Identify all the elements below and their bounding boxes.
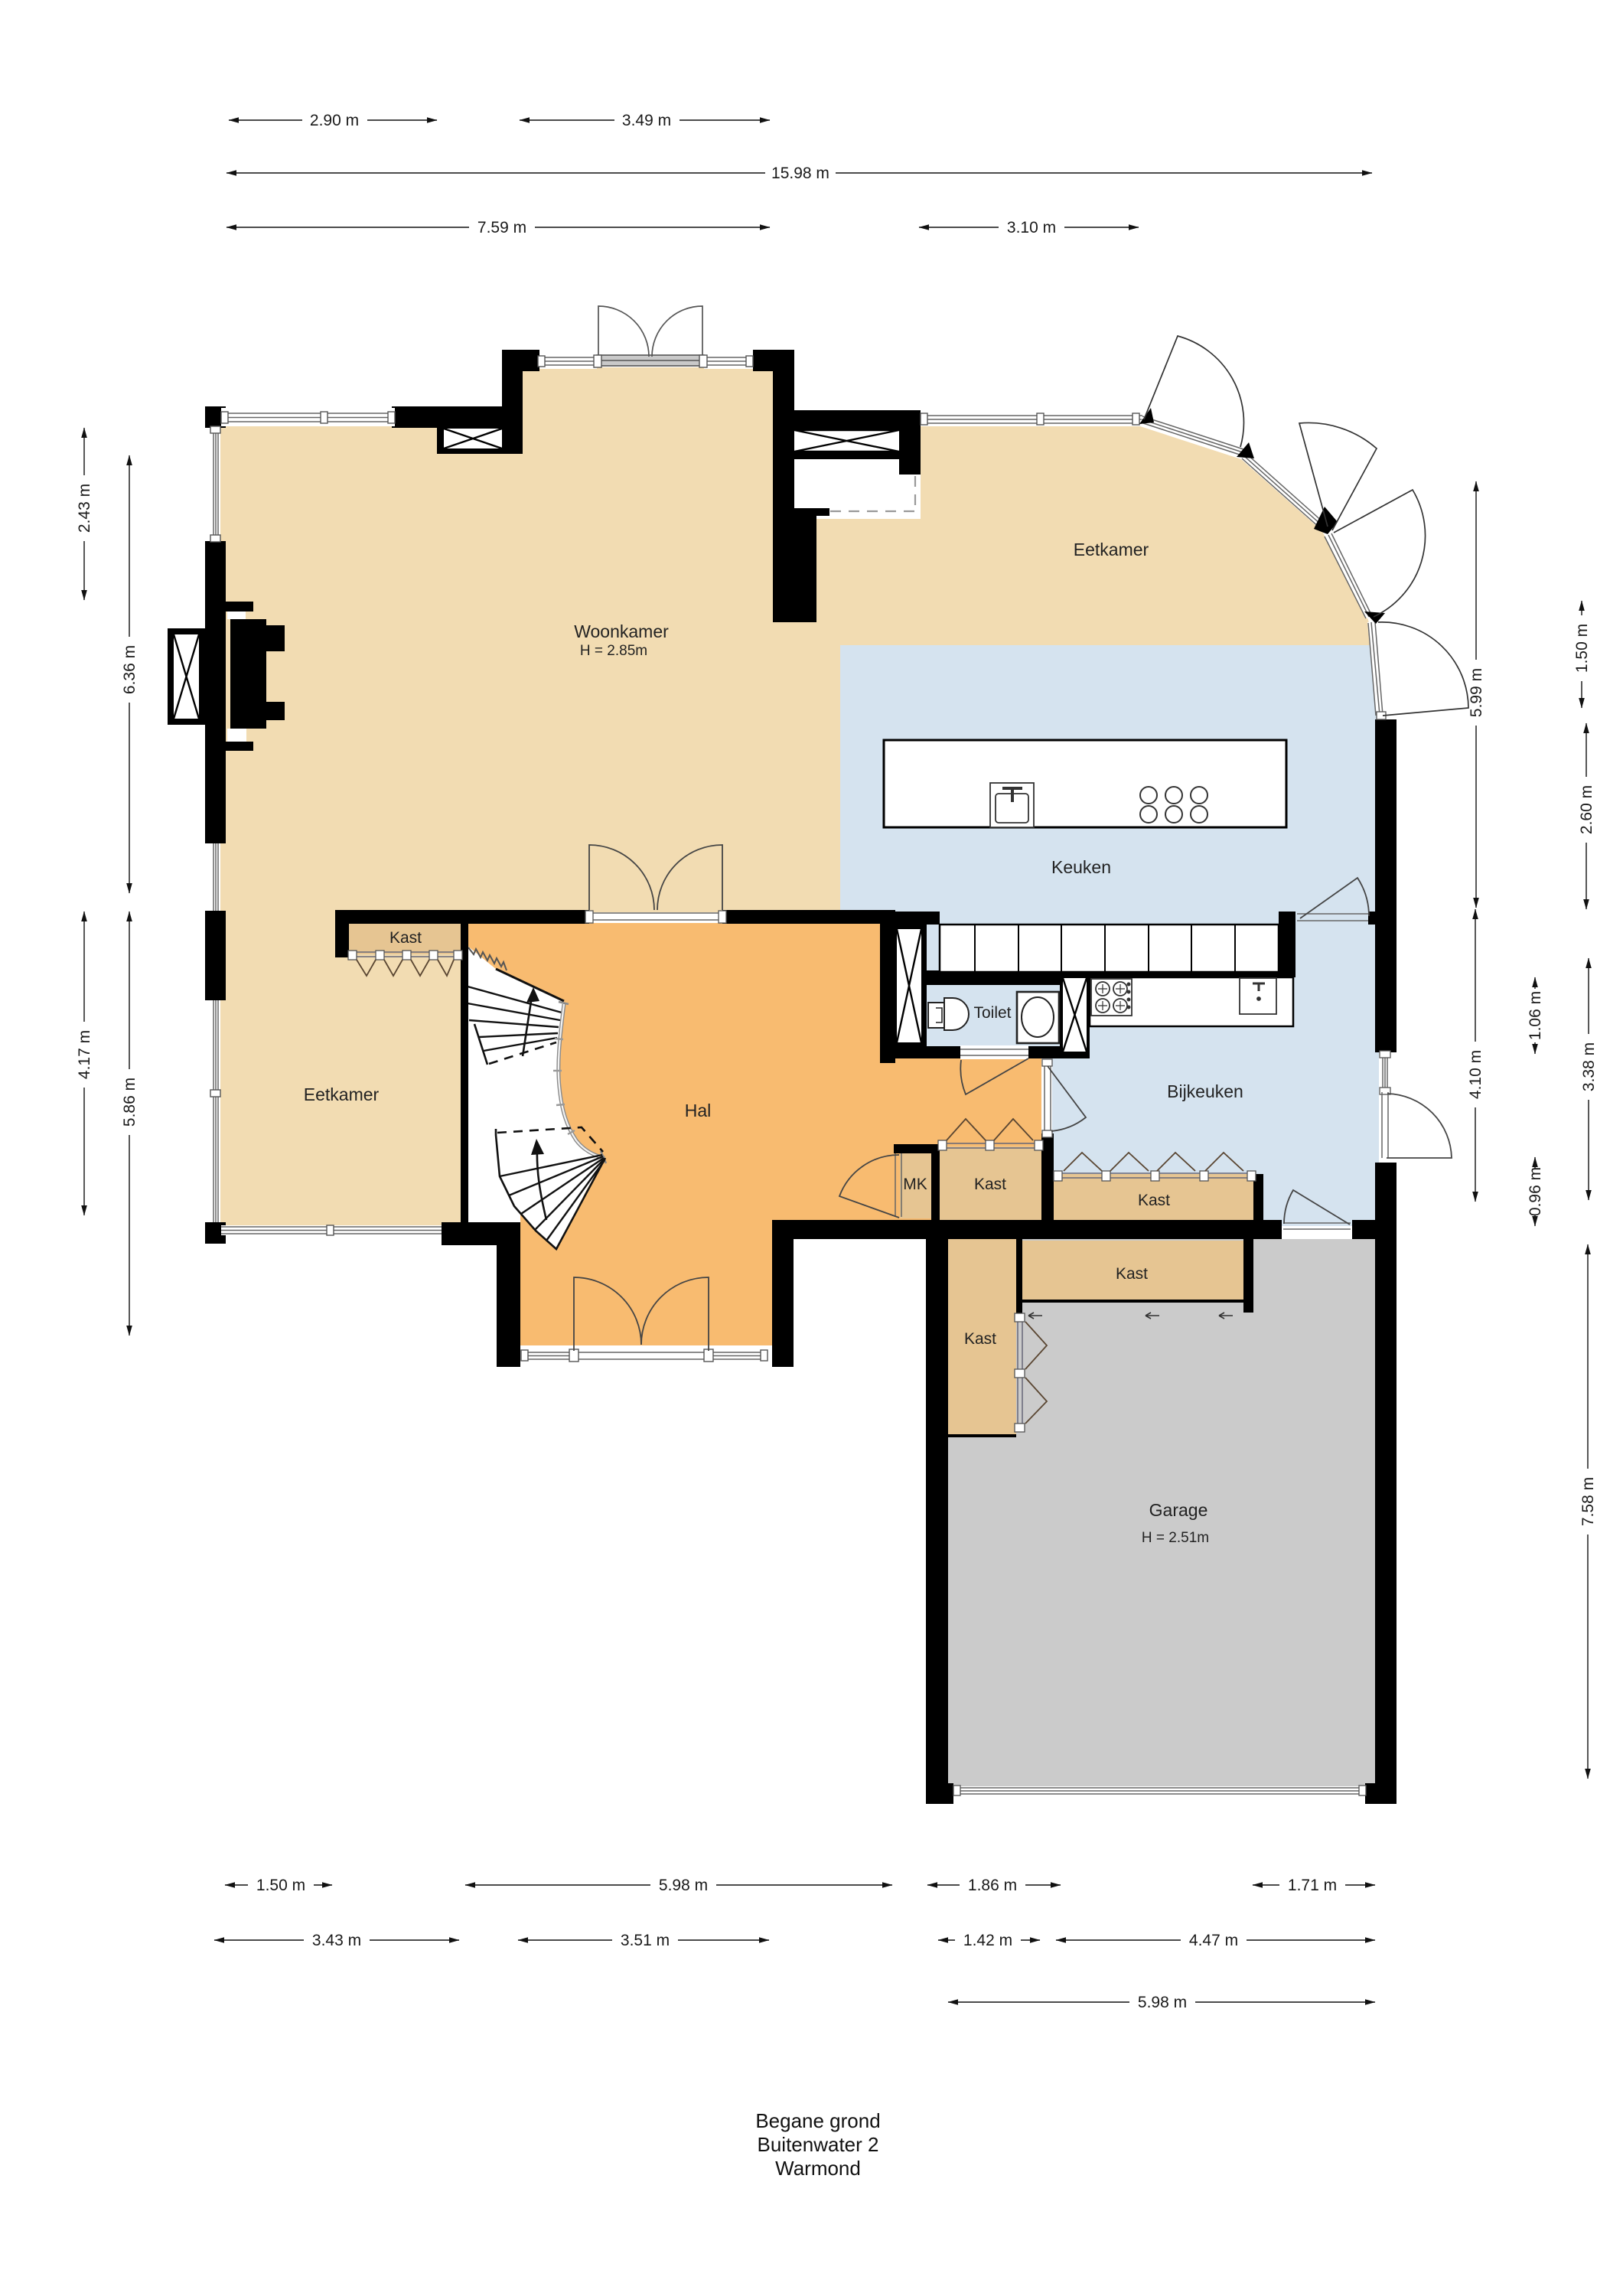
svg-text:6.36 m: 6.36 m: [121, 645, 139, 694]
svg-text:MK: MK: [903, 1176, 927, 1193]
svg-text:3.49 m: 3.49 m: [622, 112, 671, 129]
svg-text:4.47 m: 4.47 m: [1189, 1932, 1238, 1949]
svg-text:0.96 m: 0.96 m: [1527, 1167, 1544, 1216]
svg-text:4.17 m: 4.17 m: [76, 1030, 93, 1079]
svg-text:Hal: Hal: [685, 1101, 712, 1120]
svg-text:5.99 m: 5.99 m: [1468, 668, 1485, 717]
svg-text:2.90 m: 2.90 m: [310, 112, 359, 129]
svg-text:4.10 m: 4.10 m: [1467, 1050, 1484, 1099]
svg-text:Buitenwater 2: Buitenwater 2: [758, 2133, 879, 2156]
svg-text:Kast: Kast: [1138, 1192, 1170, 1209]
svg-text:H = 2.85m: H = 2.85m: [580, 643, 647, 659]
svg-text:Kast: Kast: [389, 929, 422, 947]
svg-text:5.86 m: 5.86 m: [121, 1078, 139, 1127]
svg-text:3.38 m: 3.38 m: [1580, 1042, 1598, 1091]
svg-text:7.59 m: 7.59 m: [477, 219, 526, 236]
svg-text:Kast: Kast: [1116, 1265, 1148, 1283]
svg-text:Eetkamer: Eetkamer: [304, 1084, 380, 1104]
svg-text:1.42 m: 1.42 m: [963, 1932, 1012, 1949]
svg-text:1.06 m: 1.06 m: [1527, 991, 1544, 1040]
svg-text:Garage: Garage: [1149, 1500, 1208, 1520]
svg-text:Kast: Kast: [964, 1330, 996, 1348]
svg-text:1.71 m: 1.71 m: [1288, 1877, 1337, 1894]
svg-text:3.51 m: 3.51 m: [621, 1932, 670, 1949]
svg-text:3.43 m: 3.43 m: [312, 1932, 361, 1949]
svg-text:7.58 m: 7.58 m: [1579, 1477, 1597, 1526]
svg-text:1.50 m: 1.50 m: [1573, 624, 1591, 673]
svg-text:Eetkamer: Eetkamer: [1074, 540, 1149, 559]
svg-text:Keuken: Keuken: [1051, 857, 1111, 877]
svg-text:15.98 m: 15.98 m: [771, 165, 829, 182]
svg-text:Woonkamer: Woonkamer: [574, 621, 669, 641]
svg-text:Warmond: Warmond: [775, 2157, 861, 2180]
svg-text:1.86 m: 1.86 m: [968, 1877, 1017, 1894]
svg-text:3.10 m: 3.10 m: [1007, 219, 1056, 236]
svg-text:2.43 m: 2.43 m: [76, 484, 93, 533]
svg-text:2.60 m: 2.60 m: [1578, 785, 1595, 834]
svg-text:H = 2.51m: H = 2.51m: [1142, 1530, 1209, 1546]
svg-text:5.98 m: 5.98 m: [1138, 1994, 1187, 2011]
svg-text:Toilet: Toilet: [973, 1004, 1011, 1022]
svg-text:1.50 m: 1.50 m: [256, 1877, 305, 1894]
svg-text:Kast: Kast: [974, 1176, 1006, 1193]
svg-text:5.98 m: 5.98 m: [659, 1877, 708, 1894]
svg-text:Begane grond: Begane grond: [755, 2109, 880, 2132]
svg-text:Bijkeuken: Bijkeuken: [1167, 1081, 1243, 1101]
